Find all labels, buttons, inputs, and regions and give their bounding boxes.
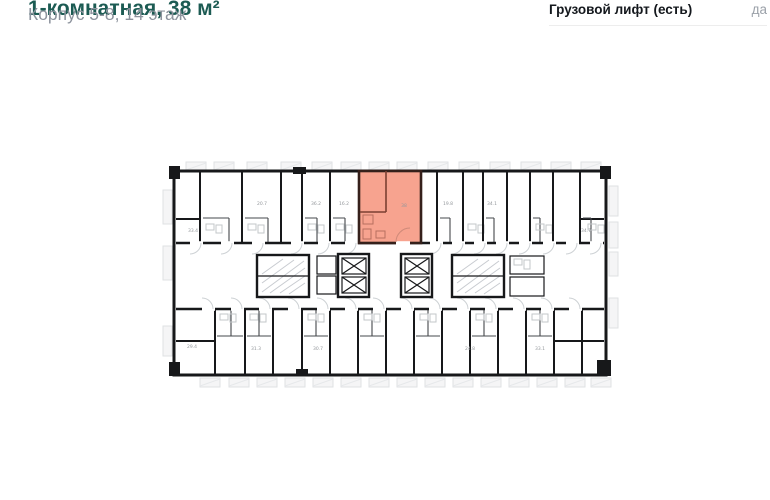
corner-block — [600, 166, 611, 179]
room-area-label: 33.4 — [188, 228, 198, 234]
room-area-label: 38 — [401, 203, 407, 209]
room-area-label: 34.7 — [581, 228, 591, 234]
room-area-label: 36.2 — [311, 201, 321, 207]
window-mark — [163, 326, 172, 356]
corner-block — [169, 362, 180, 376]
highlighted-apartment-area[interactable] — [359, 171, 421, 243]
facade-step — [293, 167, 306, 174]
corner-block — [597, 360, 611, 376]
room-area-label: 30.7 — [313, 346, 323, 352]
room-area-label: 16.2 — [339, 201, 349, 207]
room-area-label: 34.1 — [487, 201, 497, 207]
highlighted-apartment[interactable] — [359, 171, 421, 243]
room-area-label: 29.4 — [187, 344, 197, 350]
room-area-label: 24.8 — [465, 346, 475, 352]
room-area-label: 19.8 — [443, 201, 453, 207]
window-mark — [609, 186, 618, 216]
room-area-label: 20.7 — [257, 201, 267, 207]
window-mark — [609, 222, 618, 248]
room-area-label: 33.1 — [535, 346, 545, 352]
floor-plan: 33.420.736.216.23819.834.134.729.431.330… — [0, 0, 770, 500]
window-mark — [609, 298, 618, 328]
window-mark — [163, 246, 172, 280]
corner-block — [169, 166, 180, 179]
window-mark — [163, 190, 172, 224]
window-mark — [609, 252, 618, 276]
room-area-label: 31.3 — [251, 346, 261, 352]
